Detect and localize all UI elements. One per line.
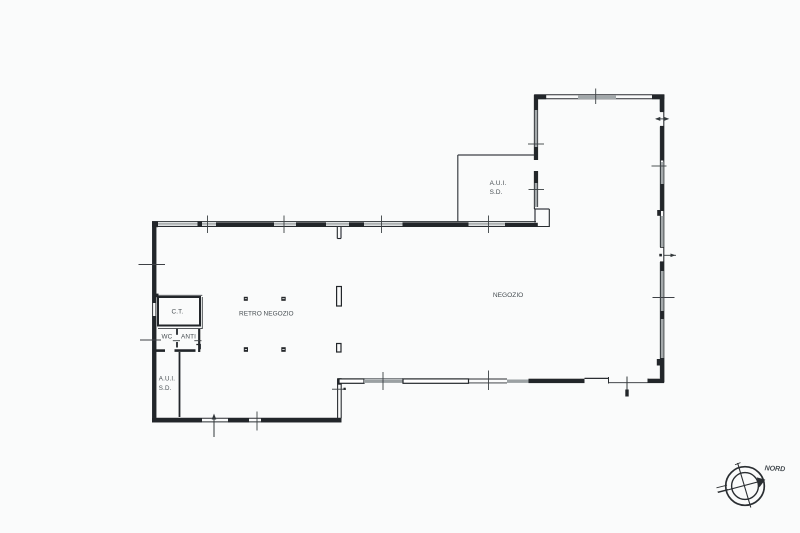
svg-text:A.U.I.: A.U.I. <box>490 180 507 187</box>
svg-text:C.T.: C.T. <box>172 309 184 316</box>
svg-text:S.D.: S.D. <box>159 385 172 392</box>
svg-text:S.D.: S.D. <box>490 189 503 196</box>
svg-text:ANTI: ANTI <box>181 333 196 340</box>
svg-text:A.U.I.: A.U.I. <box>159 376 176 383</box>
svg-text:RETRO NEGOZIO: RETRO NEGOZIO <box>239 310 294 317</box>
svg-text:NEGOZIO: NEGOZIO <box>493 292 523 299</box>
svg-text:WC: WC <box>162 333 173 340</box>
svg-text:NORD: NORD <box>764 464 785 473</box>
